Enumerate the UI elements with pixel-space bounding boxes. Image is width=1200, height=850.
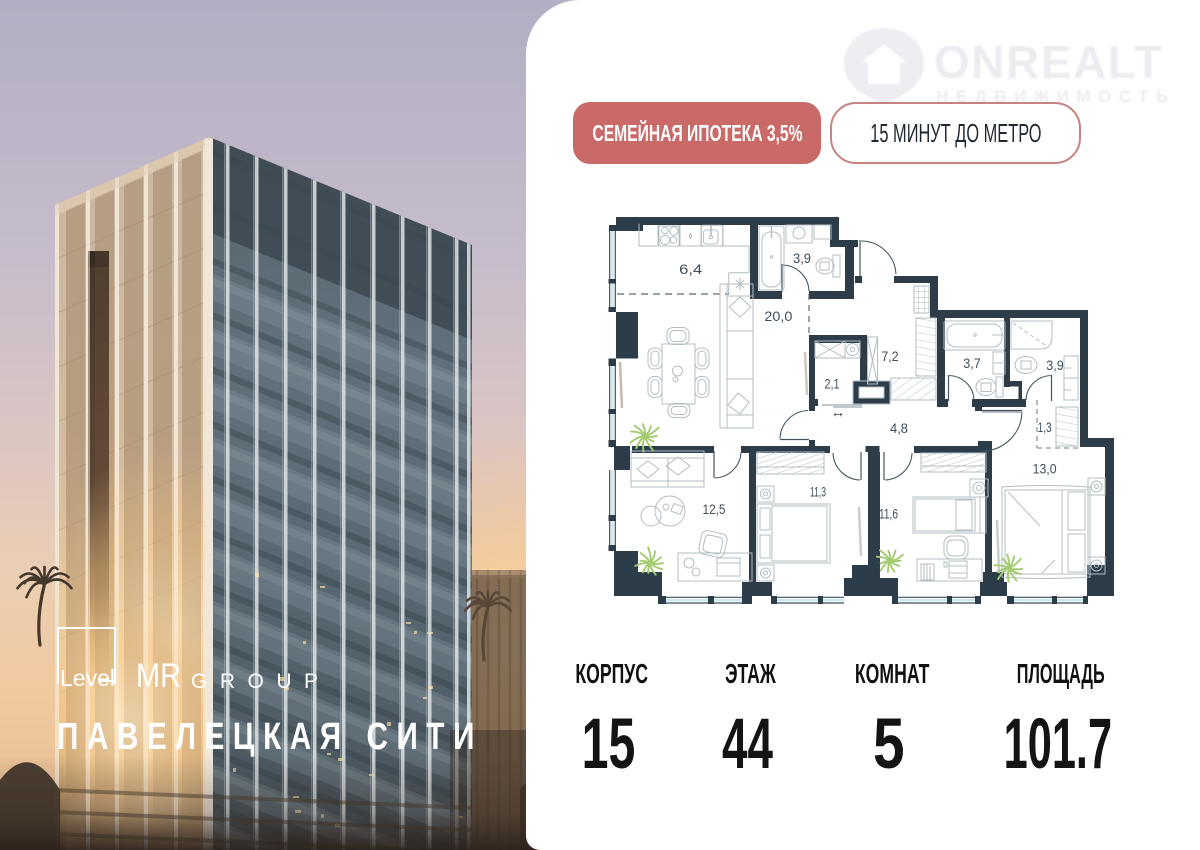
svg-text:3,7: 3,7: [963, 356, 981, 371]
svg-text:6,4: 6,4: [679, 262, 703, 277]
svg-text:20,0: 20,0: [764, 309, 792, 324]
svg-text:4,8: 4,8: [890, 421, 908, 436]
svg-text:11,3: 11,3: [810, 485, 826, 500]
svg-text:12,5: 12,5: [703, 502, 726, 517]
svg-text:13,0: 13,0: [1033, 462, 1057, 477]
svg-text:11,6: 11,6: [879, 507, 898, 522]
svg-text:3,9: 3,9: [1046, 358, 1064, 373]
svg-text:7,2: 7,2: [882, 349, 899, 364]
svg-text:ONREALT: ONREALT: [934, 36, 1162, 88]
svg-text:3,9: 3,9: [793, 251, 811, 266]
svg-text:1,3: 1,3: [1038, 420, 1052, 435]
svg-text:↔: ↔: [831, 404, 846, 421]
svg-text:2,1: 2,1: [825, 377, 840, 392]
